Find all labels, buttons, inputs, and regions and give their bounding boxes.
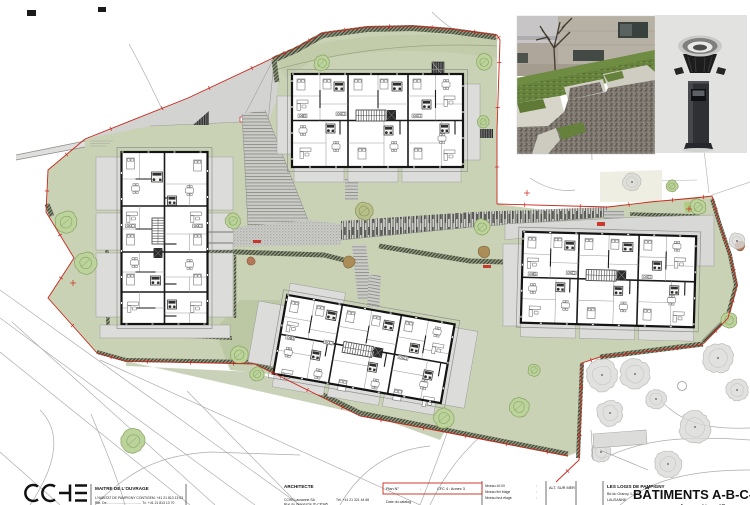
svg-text:BÂTIMENTS A-B-C-D: BÂTIMENTS A-B-C-D bbox=[633, 487, 750, 502]
svg-text:Tél. +41 21 321 44 66: Tél. +41 21 321 44 66 bbox=[336, 498, 369, 502]
svg-text:Niveau ±0.00: Niveau ±0.00 bbox=[485, 484, 505, 488]
svg-text::: : bbox=[536, 490, 537, 494]
svg-text::: : bbox=[536, 484, 537, 488]
svg-text:Plan N°: Plan N° bbox=[386, 487, 399, 491]
svg-text:Bd du Grancy 1-3: Bd du Grancy 1-3 bbox=[607, 492, 635, 496]
svg-text:ARCHITECTE: ARCHITECTE bbox=[284, 484, 314, 489]
svg-text:ALT. SUR MER: ALT. SUR MER bbox=[549, 486, 575, 490]
svg-text:Date du catalog: Date du catalog bbox=[386, 500, 411, 504]
svg-text:Rte. De.......................: Rte. De.................................… bbox=[95, 501, 174, 505]
svg-text:LAUSANNE: LAUSANNE bbox=[607, 498, 627, 502]
svg-text::: : bbox=[536, 496, 537, 500]
svg-text:L'HABITAT DE PAMPIGNY CONTIGEM: L'HABITAT DE PAMPIGNY CONTIGEM. +41 21 8… bbox=[95, 496, 183, 500]
svg-text:Niveau brut étage: Niveau brut étage bbox=[485, 496, 512, 500]
svg-text:MAITRE DE L'OUVRAGE: MAITRE DE L'OUVRAGE bbox=[95, 486, 149, 491]
svg-text:Niveau fini étage: Niveau fini étage bbox=[485, 490, 510, 494]
svg-text:CCHE Lausanne SA: CCHE Lausanne SA bbox=[284, 498, 316, 502]
svg-text:CFC 4 : Annex 3: CFC 4 : Annex 3 bbox=[437, 487, 465, 491]
